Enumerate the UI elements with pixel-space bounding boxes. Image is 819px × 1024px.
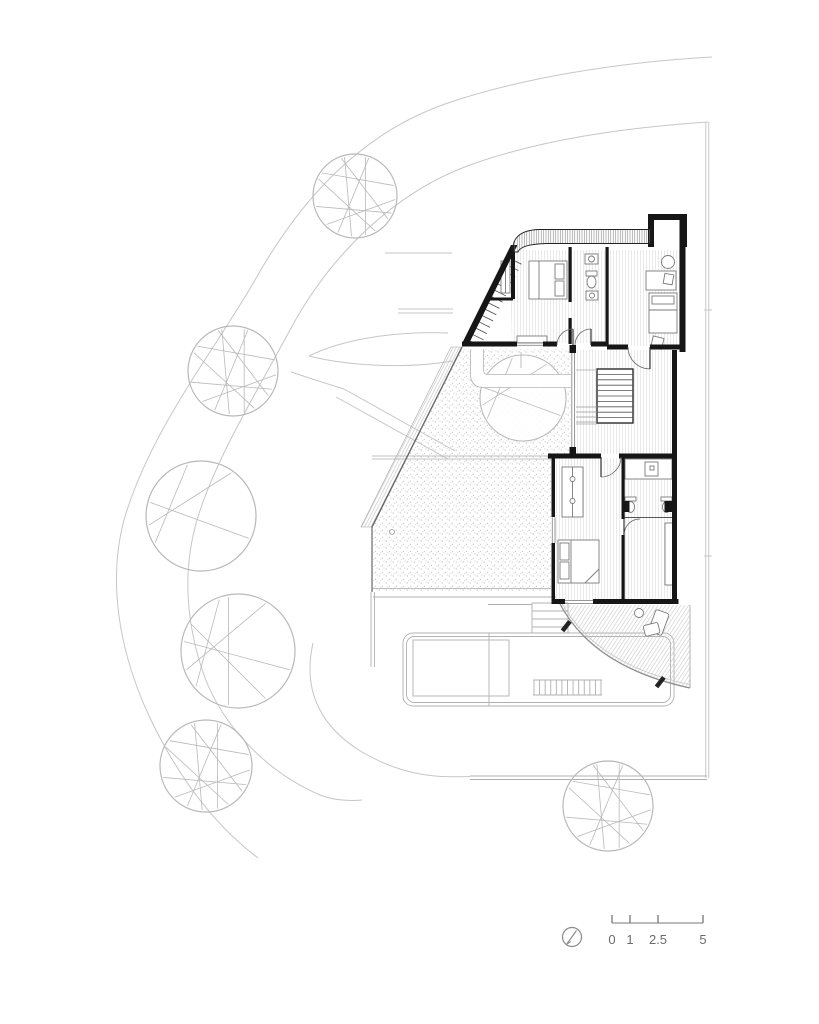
tree [188, 326, 278, 416]
property-boundary [704, 122, 712, 778]
north-indicator-icon [563, 928, 582, 947]
wall-b3-left-a [552, 455, 556, 517]
entry-wedge-tail [291, 372, 344, 389]
wall-right-lower [672, 350, 677, 602]
wall-bath1-left-a [569, 247, 572, 302]
bed1-pillow-a [555, 264, 564, 279]
deck-marker-1 [561, 620, 572, 632]
floor-plan-page: 0 1 2.5 5 [0, 0, 819, 1024]
wall-hall-bottom-b [619, 454, 676, 459]
bath2-wc-right-tank [661, 497, 672, 501]
wall-right-upper [680, 216, 686, 352]
tree [146, 461, 256, 571]
bed2-pillow [652, 296, 674, 304]
wall-top-band [513, 230, 651, 253]
entry-wedge-top [309, 333, 448, 356]
bath1-vanity-bowl [590, 293, 595, 298]
wall-b2-bottom-a [607, 345, 628, 350]
wall-bath2-left-b [622, 535, 625, 601]
deck-side-table [635, 609, 644, 618]
entry-wedge-bottom [309, 356, 452, 366]
wall-bath2-stub-right [665, 501, 673, 512]
deck [560, 602, 691, 689]
wall-b3-bottom-a [552, 599, 566, 604]
deck-surface [560, 605, 690, 688]
bath1-toilet-bowl [587, 276, 596, 288]
wall-glazing-stub-bottom [570, 447, 577, 455]
bedroom2-desk-chair [663, 273, 674, 284]
scale-bar-ticks [612, 915, 703, 923]
wall-stair-divider-v [511, 247, 515, 299]
bath1-toilet-tank [586, 271, 597, 276]
driveway-ramp-curve [310, 643, 470, 777]
scale-label-2-5: 2.5 [649, 932, 667, 947]
bath1-sink-bowl [589, 256, 595, 262]
wall-b3-bottom-b [593, 599, 623, 604]
bed1-pillow-b [555, 281, 564, 296]
wall-b1-bottom-a [462, 342, 517, 347]
wall-glazing-stub-top [570, 345, 577, 353]
bath2-washer-door [650, 466, 654, 470]
wall-stair-divider-h [489, 298, 513, 301]
courtyard [361, 347, 571, 592]
wall-b1-bottom-b [543, 342, 557, 347]
pool-stair-treads [534, 680, 601, 695]
tree [563, 761, 653, 851]
bath2-counter-right [665, 523, 673, 585]
scale-bar: 0 1 2.5 5 [608, 915, 706, 947]
pool-basin [413, 640, 509, 696]
bedroom1-dresser [517, 336, 547, 343]
tree [181, 594, 295, 708]
wall-bath2-stub-left [622, 501, 630, 512]
wall-b3-left-b [552, 543, 556, 601]
wardrobe-knob-a [570, 477, 575, 482]
scale-label-1: 1 [626, 932, 633, 947]
wardrobe-knob-b [570, 499, 575, 504]
bed3-pillow-a [560, 543, 569, 560]
wall-bath2-bottom [622, 599, 679, 604]
bed3-pillow-b [560, 562, 569, 579]
bath2-wc-left-tank [625, 497, 636, 501]
wall-bath1-right [606, 247, 609, 345]
tree [160, 720, 252, 812]
wall-b2-bottom-b [650, 345, 683, 350]
wall-b1-bottom-c [591, 342, 607, 347]
floor-plan-canvas: 0 1 2.5 5 [0, 0, 819, 1024]
scale-label-0: 0 [608, 932, 615, 947]
north-needle [567, 931, 577, 945]
tree [313, 154, 397, 238]
bedroom2-chair-round [662, 256, 675, 269]
wall-bath1-left-b [569, 318, 572, 344]
scale-label-5: 5 [699, 932, 706, 947]
